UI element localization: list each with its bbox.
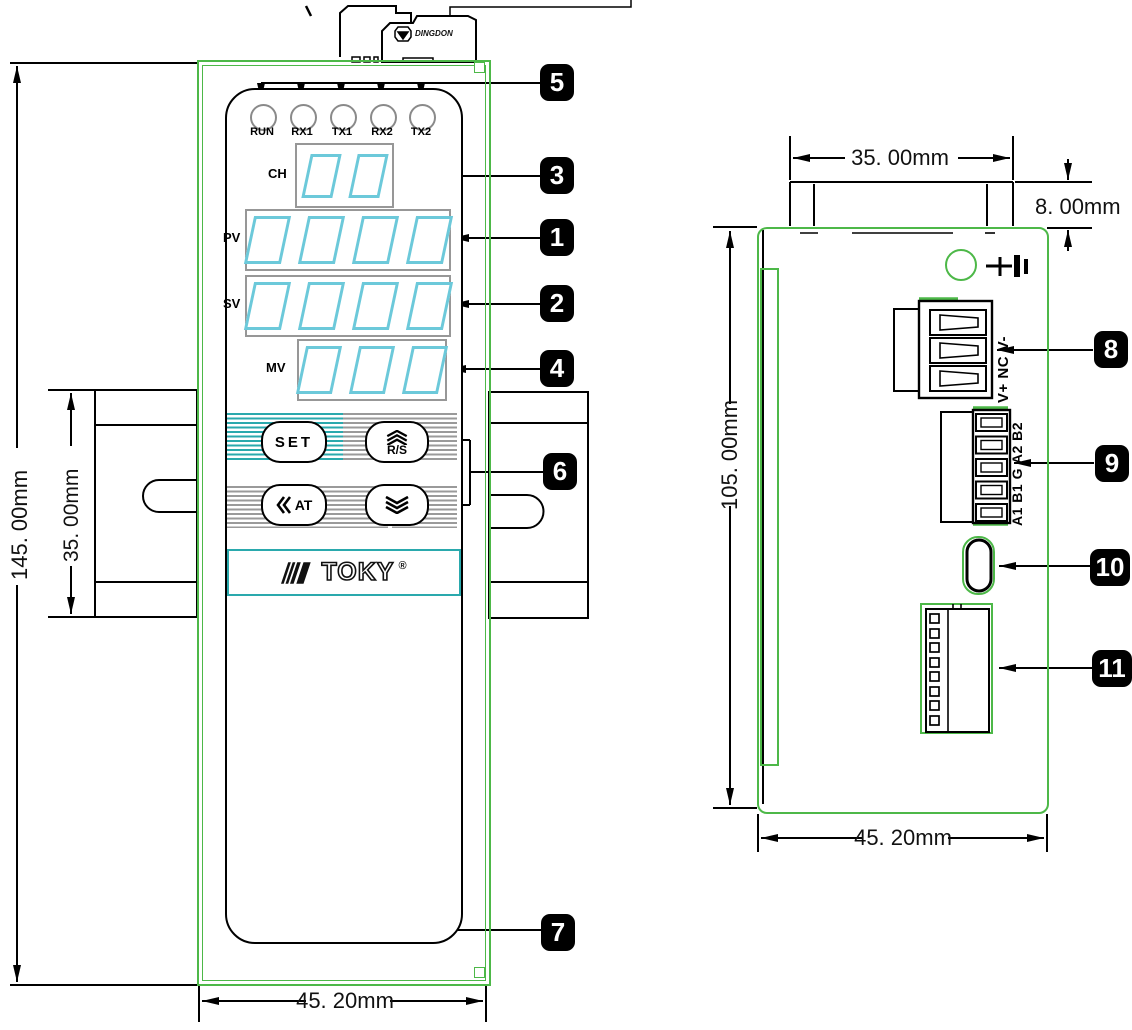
- seven-segment-digit: [351, 282, 398, 330]
- down-button: [365, 484, 429, 526]
- led-label-rx1: RX1: [280, 126, 324, 138]
- brand-slashes-icon: [281, 561, 317, 585]
- corner-notch: [474, 62, 485, 73]
- side-view-bezel: [760, 268, 779, 766]
- seven-segment-digit: [297, 282, 344, 330]
- brand-bar: TOKY ®: [227, 549, 461, 596]
- seven-segment-digit: [402, 346, 448, 394]
- connector-brand-label: DINGDON: [415, 29, 453, 38]
- din-rail-right-tab: [489, 392, 588, 618]
- seven-segment-digit: [301, 154, 341, 198]
- callout-10: 10: [1090, 549, 1130, 586]
- run-stop-button-label: R/S: [387, 443, 407, 457]
- dim-front-width: 45. 20mm: [280, 988, 410, 1014]
- comm-terminal-label: A1 B1 G A2 B2: [1009, 404, 1025, 526]
- seven-segment-digit: [243, 282, 290, 330]
- ch-display: [295, 143, 394, 208]
- dim-top-tab-width: 35. 00mm: [835, 145, 965, 171]
- set-button: SET: [261, 421, 327, 463]
- callout-1: 1: [540, 219, 574, 256]
- led-label-rx2: RX2: [360, 126, 404, 138]
- chevron-down-icon: [384, 496, 410, 514]
- callout-4: 4: [540, 350, 574, 387]
- callout-11: 11: [1092, 650, 1132, 687]
- brand-name: TOKY: [321, 560, 394, 585]
- ch-label: CH: [268, 166, 287, 181]
- led-label-run: RUN: [240, 126, 284, 138]
- pv-label: PV: [223, 230, 240, 245]
- pv-display: [245, 209, 451, 271]
- power-terminal-label: V+ NC V-: [995, 297, 1012, 403]
- callout-8: 8: [1094, 331, 1128, 368]
- mv-label: MV: [266, 360, 286, 375]
- sv-display: [245, 275, 451, 337]
- callout-5: 5: [540, 64, 574, 101]
- seven-segment-digit: [405, 216, 452, 264]
- corner-notch: [474, 967, 485, 978]
- callout-3: 3: [540, 157, 574, 194]
- dim-din-rail-height: 35. 00mm: [60, 452, 84, 562]
- seven-segment-digit: [296, 346, 342, 394]
- run-stop-button: R/S: [365, 421, 429, 463]
- dim-side-width: 45. 20mm: [838, 825, 968, 851]
- chevron-left-icon: [276, 494, 293, 516]
- callout-7: 7: [541, 914, 575, 951]
- set-button-label: SET: [275, 434, 313, 451]
- dim-front-height: 145. 00mm: [7, 458, 33, 580]
- led-label-tx2: TX2: [399, 126, 443, 138]
- callout-6: 6: [543, 453, 577, 490]
- mv-display: [297, 339, 447, 401]
- seven-segment-digit: [297, 216, 344, 264]
- registered-trademark: ®: [398, 560, 406, 572]
- led-label-tx1: TX1: [320, 126, 364, 138]
- callout-9: 9: [1095, 445, 1129, 482]
- seven-segment-digit: [349, 346, 395, 394]
- seven-segment-digit: [348, 154, 388, 198]
- autotune-button: AT: [261, 484, 327, 526]
- top-bus-connector: [306, 0, 631, 62]
- sv-label: SV: [223, 296, 240, 311]
- autotune-button-label: AT: [295, 497, 313, 513]
- callout-2: 2: [540, 285, 574, 322]
- dim-top-tab-height: 8. 00mm: [1035, 194, 1132, 220]
- din-rail-left-tab: [95, 390, 197, 617]
- dimension-drawing-page: RUN RX1 TX1 RX2 TX2 CH PV SV MV SET: [0, 0, 1132, 1030]
- seven-segment-digit: [243, 216, 290, 264]
- seven-segment-digit: [405, 282, 452, 330]
- seven-segment-digit: [351, 216, 398, 264]
- dim-side-height: 105. 00mm: [717, 398, 743, 510]
